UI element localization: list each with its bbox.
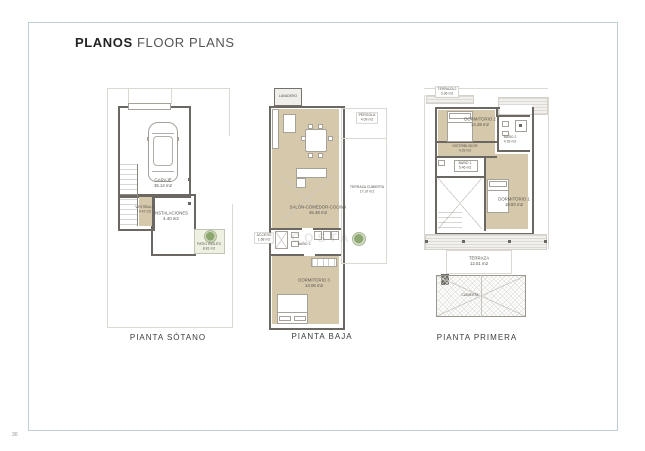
driveway-line	[171, 88, 172, 104]
room-label-dormitorio1: DORMITORIO 1 18.83 m2	[498, 198, 530, 209]
wall-notch	[500, 105, 532, 114]
room-label-patio-ingles: PATIO INGLÉS 8.81 m2	[197, 243, 221, 252]
parcel-line	[424, 95, 425, 250]
toilet	[502, 121, 509, 127]
chair	[318, 124, 323, 129]
stairs	[438, 212, 462, 229]
room-label-vestibulo: VESTÍBULO 4.47 m2	[135, 206, 155, 215]
floorplan-primera: TERRAZA 2 3.36 m2 DORMITORIO 2 14.28 m2 …	[418, 84, 550, 330]
plant-icon	[204, 230, 217, 243]
bed-pillow	[489, 181, 507, 187]
page-title-bold: PLANOS	[75, 35, 133, 50]
wall-post	[188, 178, 191, 181]
room-label-salon: SALÓN-COMEDOR-COCINA 45.48 m2	[290, 206, 347, 217]
post	[462, 240, 465, 243]
page-title-regular: FLOOR PLANS	[137, 35, 235, 50]
brochure-page: PLANOS FLOOR PLANS	[0, 0, 645, 451]
room-label-bano2: BAÑO 2 4.33 m2	[504, 136, 517, 145]
bed-fold-line	[277, 312, 308, 313]
page-number: 30	[12, 432, 18, 438]
parcel-line	[107, 88, 230, 89]
roof-ridge	[481, 275, 482, 317]
wall-interior	[484, 156, 486, 231]
wall-interior	[497, 117, 499, 152]
wall-post	[188, 202, 191, 205]
pergola-line	[341, 138, 387, 139]
wall-segment	[496, 115, 530, 117]
floorplan-sotano: GARAJE 35.14 m2 VESTÍBULO 4.47 m2 INSTAL…	[103, 84, 237, 336]
dining-table	[305, 129, 327, 152]
page-title: PLANOS FLOOR PLANS	[75, 35, 235, 50]
bed-pillow	[279, 316, 291, 321]
parcel-line	[229, 88, 230, 136]
door-gap	[304, 254, 315, 256]
chair	[308, 124, 313, 129]
chair	[318, 153, 323, 158]
room-label-bano1: BAÑO 1 5.46 m2	[459, 162, 472, 171]
room-label-dormitorio2: DORMITORIO 2 14.28 m2	[464, 118, 496, 129]
parcel-line	[548, 97, 549, 249]
room-label-terraza: TERRAZA 12.51 m2	[469, 257, 489, 268]
door-gap	[302, 228, 313, 230]
bed-pillow	[294, 316, 306, 321]
room-label-lavadero: LAVADERO	[279, 95, 297, 99]
stairs	[120, 164, 138, 226]
bed-fold-line	[487, 190, 509, 191]
post	[508, 240, 511, 243]
pergola-slats	[425, 234, 547, 250]
room-label-terraza2: TERRAZA 2 3.36 m2	[435, 86, 459, 97]
driveway-line	[128, 88, 129, 104]
wardrobe	[311, 258, 337, 267]
room-label-terraza-cubierta: TERRAZA CUBIERTA 17.37 m2	[350, 186, 384, 195]
kitchen-counter	[272, 109, 279, 149]
floorplan-baja: LAVADERO PÉRGOLA 4.09 m2 TERRAZA CUBIERT…	[256, 76, 394, 334]
chair	[308, 153, 313, 158]
shower-drain	[519, 124, 522, 127]
parcel-line	[107, 88, 108, 328]
post	[425, 240, 428, 243]
room-label-acceso: ACCESO 1.68 m2	[254, 232, 273, 243]
wall-interior	[497, 150, 530, 152]
room-label-distribuidor: DISTRIBUIDOR 4.29 m2	[453, 145, 478, 154]
car-mirror	[177, 137, 179, 141]
garage-door	[128, 103, 171, 110]
wall-interior	[435, 156, 497, 158]
chair	[301, 136, 306, 141]
toilet	[438, 160, 445, 166]
room-label-garaje: GARAJE 35.14 m2	[154, 179, 172, 190]
parcel-line	[107, 327, 233, 328]
room-label-instalaciones: INSTALACIONES 4.40 m2	[154, 212, 188, 223]
post	[544, 240, 547, 243]
car-mirror	[147, 137, 149, 141]
room-label-cubierta: CUBIERTA	[461, 294, 478, 298]
caption-pianta-sotano: PIANTA SÓTANO	[130, 333, 206, 342]
caption-pianta-baja: PIANTA BAJA	[291, 332, 352, 341]
car-windshield	[152, 133, 174, 134]
watermark: COSTA	[272, 231, 372, 245]
room-label-pergola: PÉRGOLA 4.09 m2	[356, 112, 377, 123]
room-label-dormitorio3: DORMITORIO 3 13.06 m2	[298, 279, 330, 290]
kitchen-island	[283, 114, 296, 133]
parcel-line	[232, 204, 233, 328]
chair	[328, 136, 333, 141]
caption-pianta-primera: PIANTA PRIMERA	[437, 333, 518, 342]
car	[148, 122, 178, 182]
car-roof	[153, 136, 173, 166]
car-rear-window	[152, 171, 174, 172]
